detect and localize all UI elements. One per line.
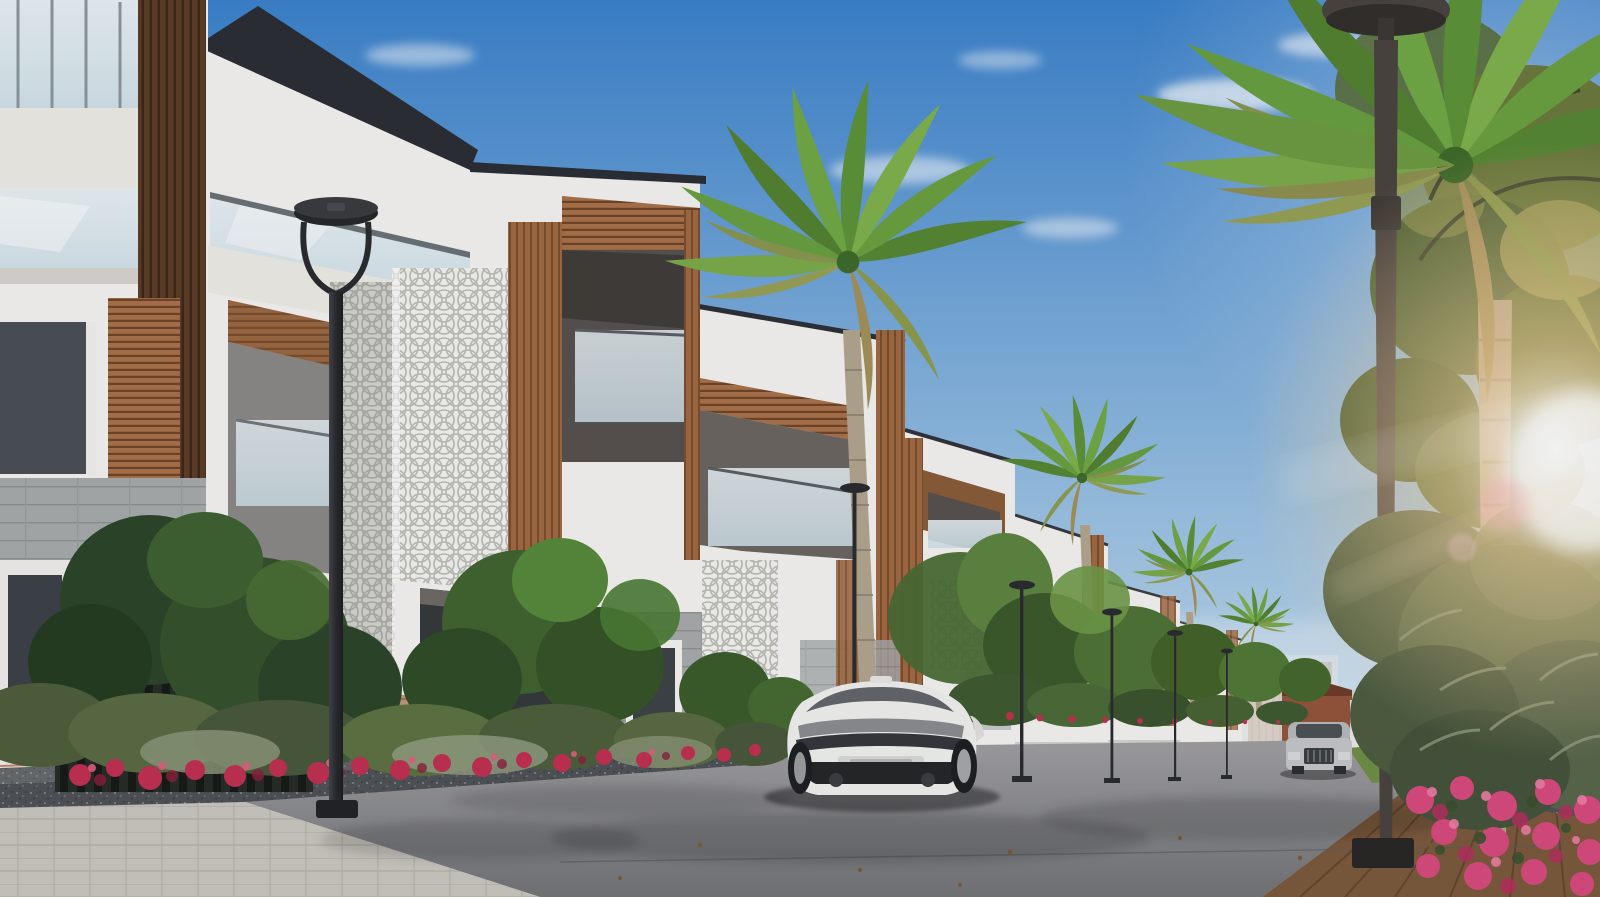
vignette <box>0 0 1600 897</box>
street-scene <box>0 0 1600 897</box>
scene-canvas <box>0 0 1600 897</box>
